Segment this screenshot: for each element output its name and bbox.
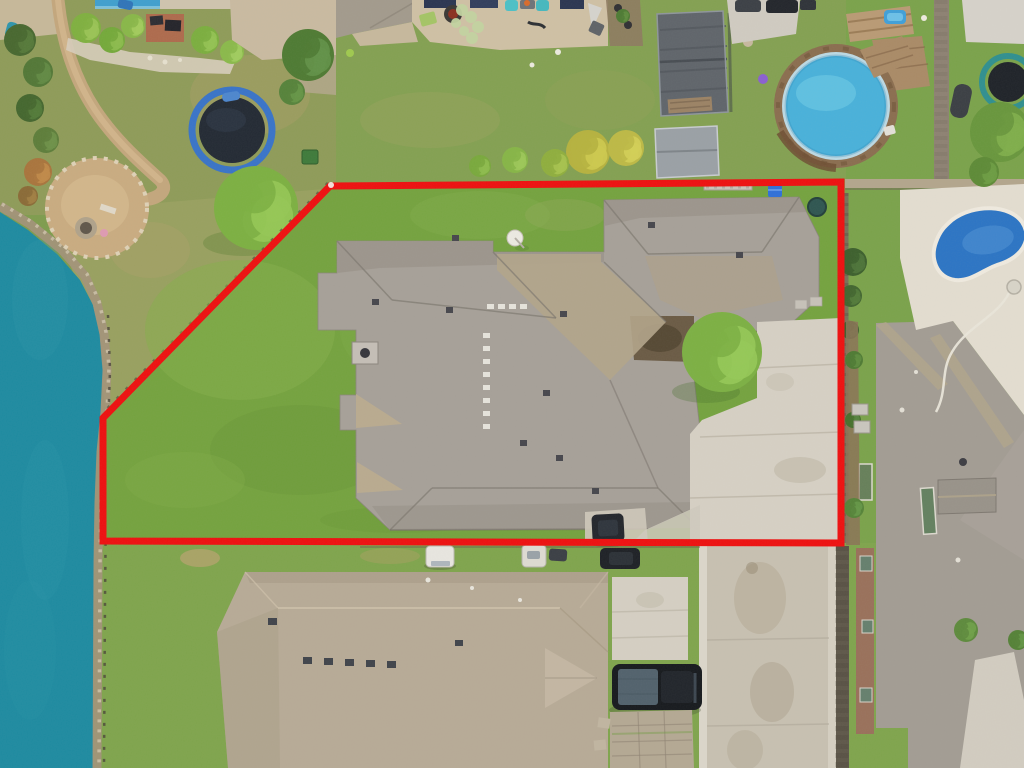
aerial-photo-svg: [0, 0, 1024, 768]
photo-grain-overlay: [0, 0, 1024, 768]
aerial-property-photo: [0, 0, 1024, 768]
